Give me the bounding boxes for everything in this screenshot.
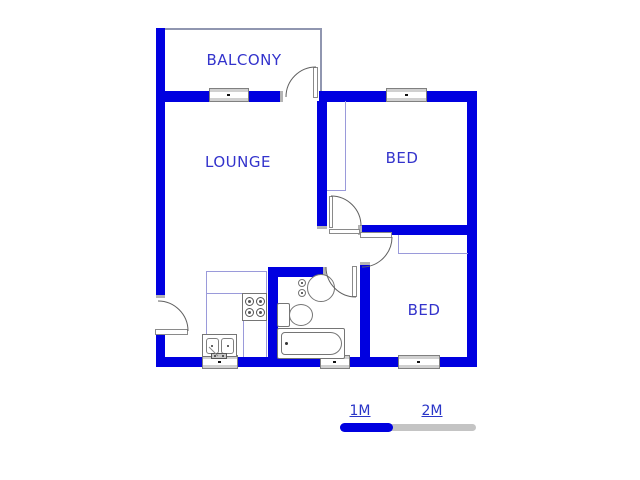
jamb-balcony-door [280,91,283,102]
bathtub-inner [281,332,342,355]
stove [242,293,267,321]
closet-bed1 [327,101,346,191]
window-dot [405,94,408,96]
faucet-knob [222,355,224,357]
window-bed1-top [386,88,427,102]
scale-label-2m: 2M [412,403,452,419]
window-dot [227,94,230,96]
door-arc-balcony [286,67,316,97]
basin-tap [298,279,306,287]
bathtub-drain [285,342,288,345]
wall-right [467,91,477,367]
room-label-bed2: BED [399,301,449,319]
kitchen-counter-inner [206,293,244,294]
wall-bottom-d [440,357,477,367]
balcony-rail-right [320,28,322,91]
stove-burner [245,308,254,317]
sink-drain [227,345,229,347]
jamb-entrance-top [156,295,165,298]
door-leaf-entrance [155,329,188,335]
door-sill-bed1 [329,229,360,234]
window-lounge-top [209,88,249,102]
room-label-balcony: BALCONY [199,51,289,69]
door-arc-entrance [158,301,188,331]
floor-plan: BALCONY LOUNGE BED BED 1M 2M [0,0,640,480]
sink-drain [211,345,213,347]
window-band [387,89,426,92]
balcony-rail-top [165,28,322,30]
wall-top-a [156,91,209,102]
kitchen-counter-top [206,271,267,272]
tap-dot [301,292,303,294]
wall-bottom-c [350,357,398,367]
window-dot [333,361,336,363]
window-band [210,98,248,101]
stove-burner [245,297,254,306]
tap-dot [301,282,303,284]
jamb-bath-wall-top [360,262,370,265]
window-bed2-bottom [398,355,440,369]
sink-faucet [211,353,227,359]
room-label-lounge: LOUNGE [198,153,278,171]
window-band [210,89,248,92]
door-leaf-bed1 [329,196,333,228]
wall-bath-bed2 [360,265,370,367]
faucet-knob [214,355,216,357]
door-leaf-balcony [313,67,318,98]
scale-label-1m: 1M [340,403,380,419]
kitchen-counter-left [206,271,207,334]
wall-top-b [249,91,283,102]
wall-lounge-bed1 [317,101,327,226]
window-band [387,98,426,101]
door-arc-bed1 [331,196,361,226]
wall-bottom-a [156,357,202,367]
door-leaf-bathroom [352,266,357,297]
window-band [399,356,439,359]
wall-left-upper [156,28,165,298]
jamb-bed1-door [317,226,327,229]
scale-bar-1m [340,423,393,432]
closet-bed2 [398,235,468,254]
stove-burner [256,297,265,306]
wash-basin [307,274,335,302]
basin-tap [298,289,306,297]
door-leaf-bed2 [360,232,392,238]
window-band [321,365,349,368]
room-label-bed1: BED [377,149,427,167]
stove-burner [256,308,265,317]
window-band [399,365,439,368]
window-dot [417,361,420,363]
window-band [203,365,237,368]
window-dot [218,361,221,363]
toilet-bowl [289,304,313,326]
